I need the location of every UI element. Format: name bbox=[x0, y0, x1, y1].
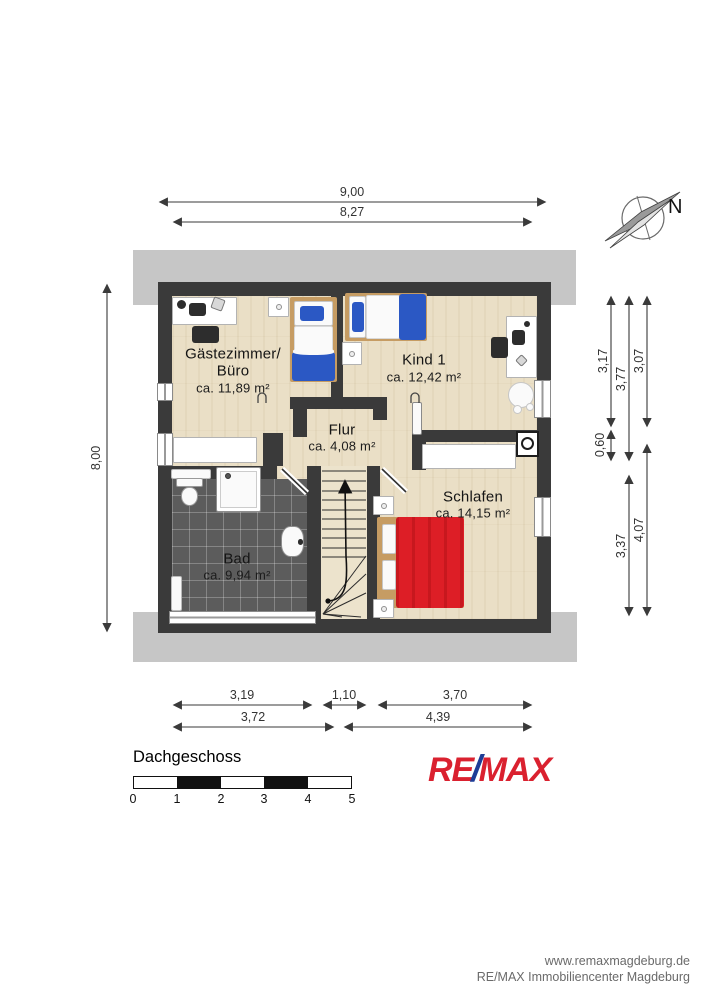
logo-max: MAX bbox=[479, 751, 552, 789]
bed-guestroom-blanket bbox=[292, 352, 335, 381]
dim-bottom-370: 3,70 bbox=[443, 688, 467, 702]
dim-bottom-110: 1,10 bbox=[332, 688, 356, 702]
wall-bad-stair bbox=[307, 466, 321, 619]
compass-needle-light bbox=[610, 199, 672, 248]
window-left-upper bbox=[157, 383, 173, 401]
lamp-dot-icon bbox=[276, 304, 282, 310]
lamp-dot-icon bbox=[349, 351, 355, 357]
scale-tick-2: 2 bbox=[218, 792, 225, 806]
compass-north-label: N bbox=[668, 196, 682, 219]
scale-tick-3: 3 bbox=[261, 792, 268, 806]
dim-left-800: 8,00 bbox=[89, 446, 103, 470]
footer-company: RE/MAX Immobiliencenter Magdeburg bbox=[477, 969, 690, 985]
bed-guestroom-pillow bbox=[300, 306, 324, 321]
wall-flur-left-cap bbox=[293, 409, 307, 437]
floor-title: Dachgeschoss bbox=[133, 748, 241, 767]
scale-seg-white bbox=[308, 777, 351, 788]
scale-tick-1: 1 bbox=[174, 792, 181, 806]
chimney-ring-icon bbox=[521, 437, 534, 450]
bed-kid-pillow bbox=[352, 302, 364, 332]
room-area-bad: ca. 9,94 m² bbox=[203, 568, 270, 583]
room-label-schlafen: Schlafen bbox=[443, 489, 503, 506]
dim-right-337: 3,37 bbox=[614, 534, 628, 558]
dim-right-307: 3,07 bbox=[632, 349, 646, 373]
bed-schlafen-blanket bbox=[396, 517, 464, 608]
desk-kid-monitor-icon bbox=[512, 330, 525, 345]
dim-bottom-319: 3,19 bbox=[230, 688, 254, 702]
nightstand-kid bbox=[342, 342, 362, 365]
drain-dot-icon bbox=[225, 473, 231, 479]
window-right-kind bbox=[534, 380, 551, 418]
bed-kid-blanket bbox=[399, 294, 426, 340]
desk-kid-lamp-icon bbox=[524, 321, 530, 327]
scale-tick-4: 4 bbox=[305, 792, 312, 806]
sideboard-guestroom bbox=[173, 437, 257, 463]
compass-axis bbox=[637, 196, 650, 240]
bed-schlafen-pillow2 bbox=[382, 560, 396, 590]
faucet-icon bbox=[298, 539, 303, 545]
scale-seg-white bbox=[221, 777, 264, 788]
dim-top-900: 9,00 bbox=[340, 185, 364, 199]
dim-top-827: 8,27 bbox=[340, 205, 364, 219]
logo-re: RE bbox=[428, 751, 473, 789]
closet-schlafen bbox=[422, 444, 516, 469]
scale-bar bbox=[133, 776, 352, 789]
scale-seg-white bbox=[134, 777, 177, 788]
dim-right-377: 3,77 bbox=[614, 367, 628, 391]
chair-kid bbox=[491, 337, 508, 358]
room-label-guest-line2: Büro bbox=[217, 363, 250, 380]
room-label-kind: Kind 1 bbox=[402, 352, 446, 369]
table-kid-chair1 bbox=[513, 405, 522, 414]
scale-tick-0: 0 bbox=[130, 792, 137, 806]
wall-guest-stub bbox=[263, 433, 283, 466]
table-kid-chair2 bbox=[526, 403, 534, 411]
compass-circle bbox=[622, 197, 664, 239]
bed-schlafen-pillow1 bbox=[382, 524, 396, 554]
room-area-schlafen: ca. 14,15 m² bbox=[436, 506, 511, 521]
laptop-icon bbox=[189, 303, 206, 316]
nightstand-schlafen-top bbox=[373, 496, 394, 515]
dim-right-407: 4,07 bbox=[632, 518, 646, 542]
dim-right-317: 3,17 bbox=[596, 349, 610, 373]
room-label-guest-line1: Gästezimmer/ bbox=[185, 346, 281, 363]
window-bottom-bad bbox=[169, 611, 316, 624]
remax-logo: RE/MAX bbox=[428, 751, 551, 787]
footer-website: www.remaxmagdeburg.de bbox=[477, 953, 690, 969]
room-area-kind: ca. 12,42 m² bbox=[387, 370, 462, 385]
sink bbox=[281, 526, 304, 557]
bed-guestroom-fold bbox=[293, 348, 334, 355]
scale-tick-5: 5 bbox=[349, 792, 356, 806]
dim-bottom-439: 4,39 bbox=[426, 710, 450, 724]
toilet-tank bbox=[176, 478, 203, 487]
bath-radiator bbox=[171, 576, 182, 611]
window-right-schlafen bbox=[534, 497, 551, 537]
dim-right-060: 0,60 bbox=[593, 433, 607, 457]
lamp-dot-icon bbox=[381, 503, 387, 509]
nightstand-guestroom bbox=[268, 297, 289, 317]
wall-flur-right-cap bbox=[373, 409, 387, 420]
nightstand-schlafen-bottom bbox=[373, 599, 394, 618]
dim-bottom-372: 3,72 bbox=[241, 710, 265, 724]
floorplan-page: Gästezimmer/ Büro ca. 11,89 m² Kind 1 ca… bbox=[0, 0, 706, 1000]
wall-flur-top bbox=[290, 397, 387, 409]
room-label-bad: Bad bbox=[223, 551, 250, 568]
shower-tray bbox=[216, 467, 261, 512]
staircase-floor bbox=[321, 466, 367, 619]
room-label-flur: Flur bbox=[329, 422, 356, 439]
desk-kid bbox=[506, 316, 537, 378]
toilet-bowl bbox=[181, 487, 198, 506]
door-leaf-kid bbox=[412, 402, 422, 435]
lamp-dot-icon bbox=[381, 606, 387, 612]
scale-seg-black bbox=[264, 777, 307, 788]
desk-lamp-icon bbox=[177, 300, 186, 309]
chair-guestroom bbox=[192, 326, 219, 343]
chimney-box bbox=[516, 431, 539, 457]
scale-seg-black bbox=[177, 777, 220, 788]
room-area-flur: ca. 4,08 m² bbox=[308, 439, 375, 454]
room-area-guest: ca. 11,89 m² bbox=[196, 381, 270, 396]
footer: www.remaxmagdeburg.de RE/MAX Immobilienc… bbox=[477, 953, 690, 985]
bed-kid-sheet bbox=[366, 295, 400, 339]
window-left-lower bbox=[157, 433, 173, 466]
